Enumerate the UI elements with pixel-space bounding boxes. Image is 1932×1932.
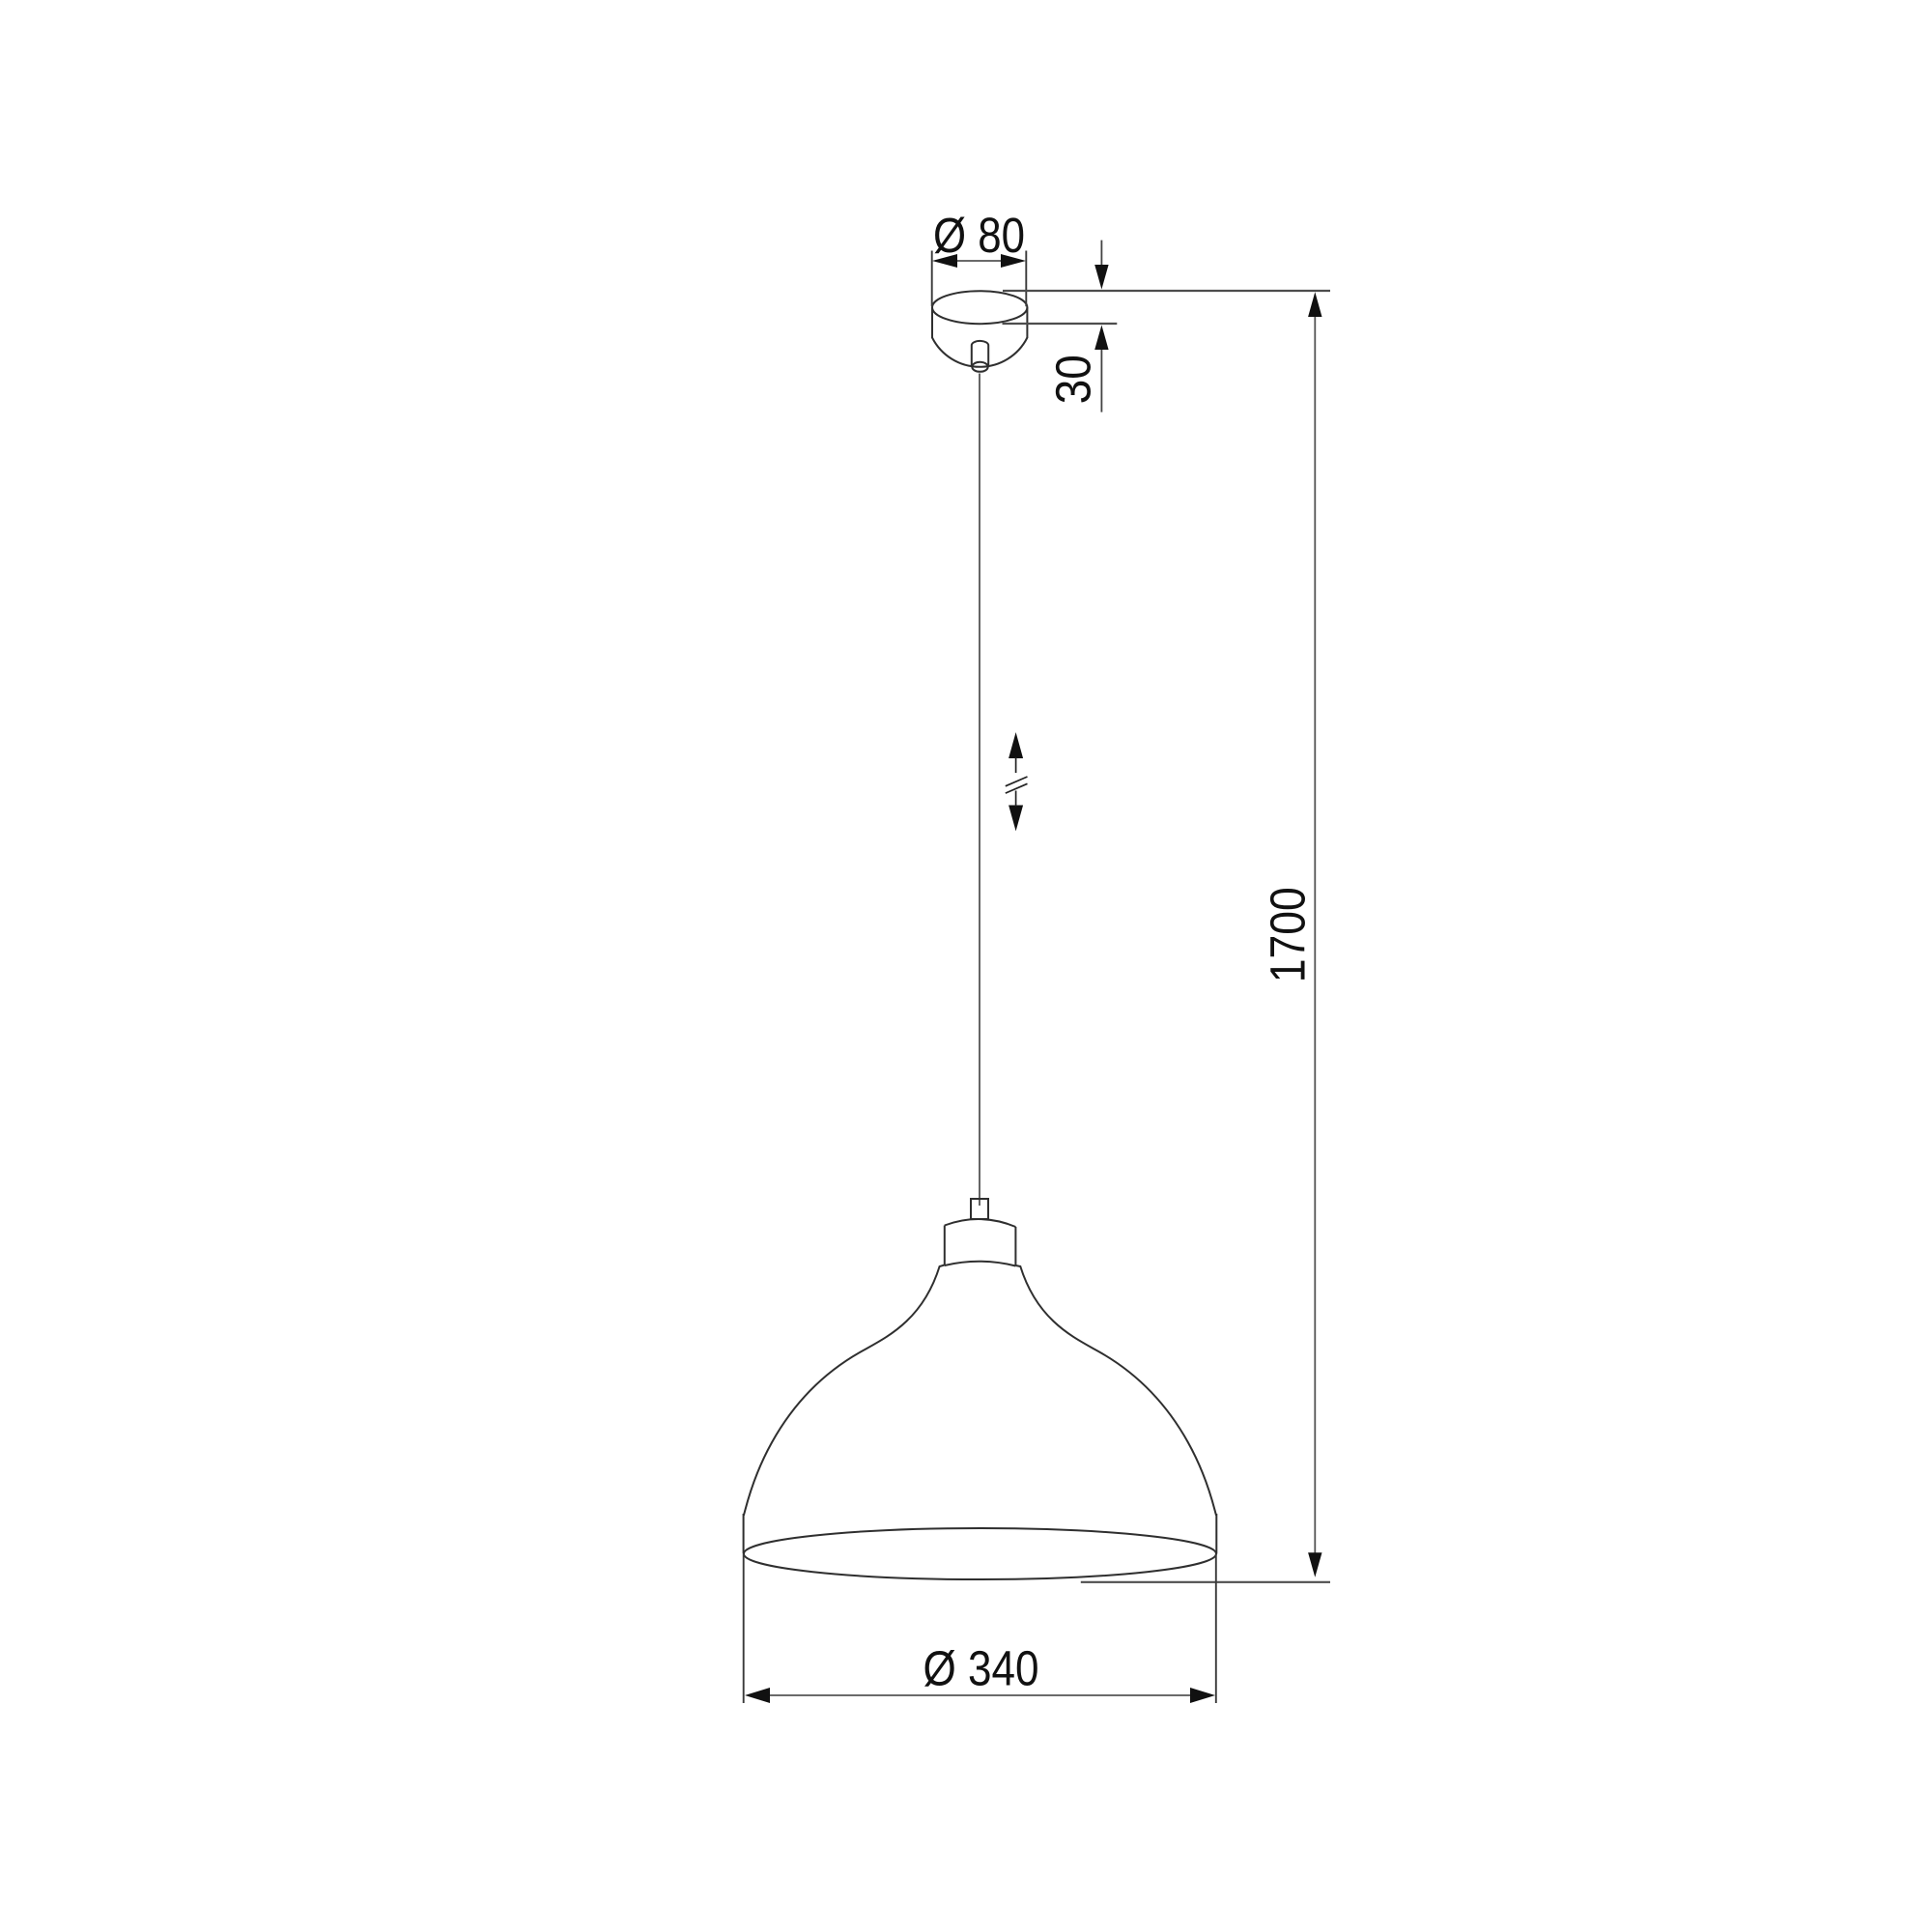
svg-text:Ø 80: Ø 80 <box>933 208 1025 263</box>
svg-text:1700: 1700 <box>1260 887 1315 982</box>
svg-text:30: 30 <box>1046 355 1101 404</box>
svg-text:Ø 340: Ø 340 <box>923 1641 1039 1696</box>
